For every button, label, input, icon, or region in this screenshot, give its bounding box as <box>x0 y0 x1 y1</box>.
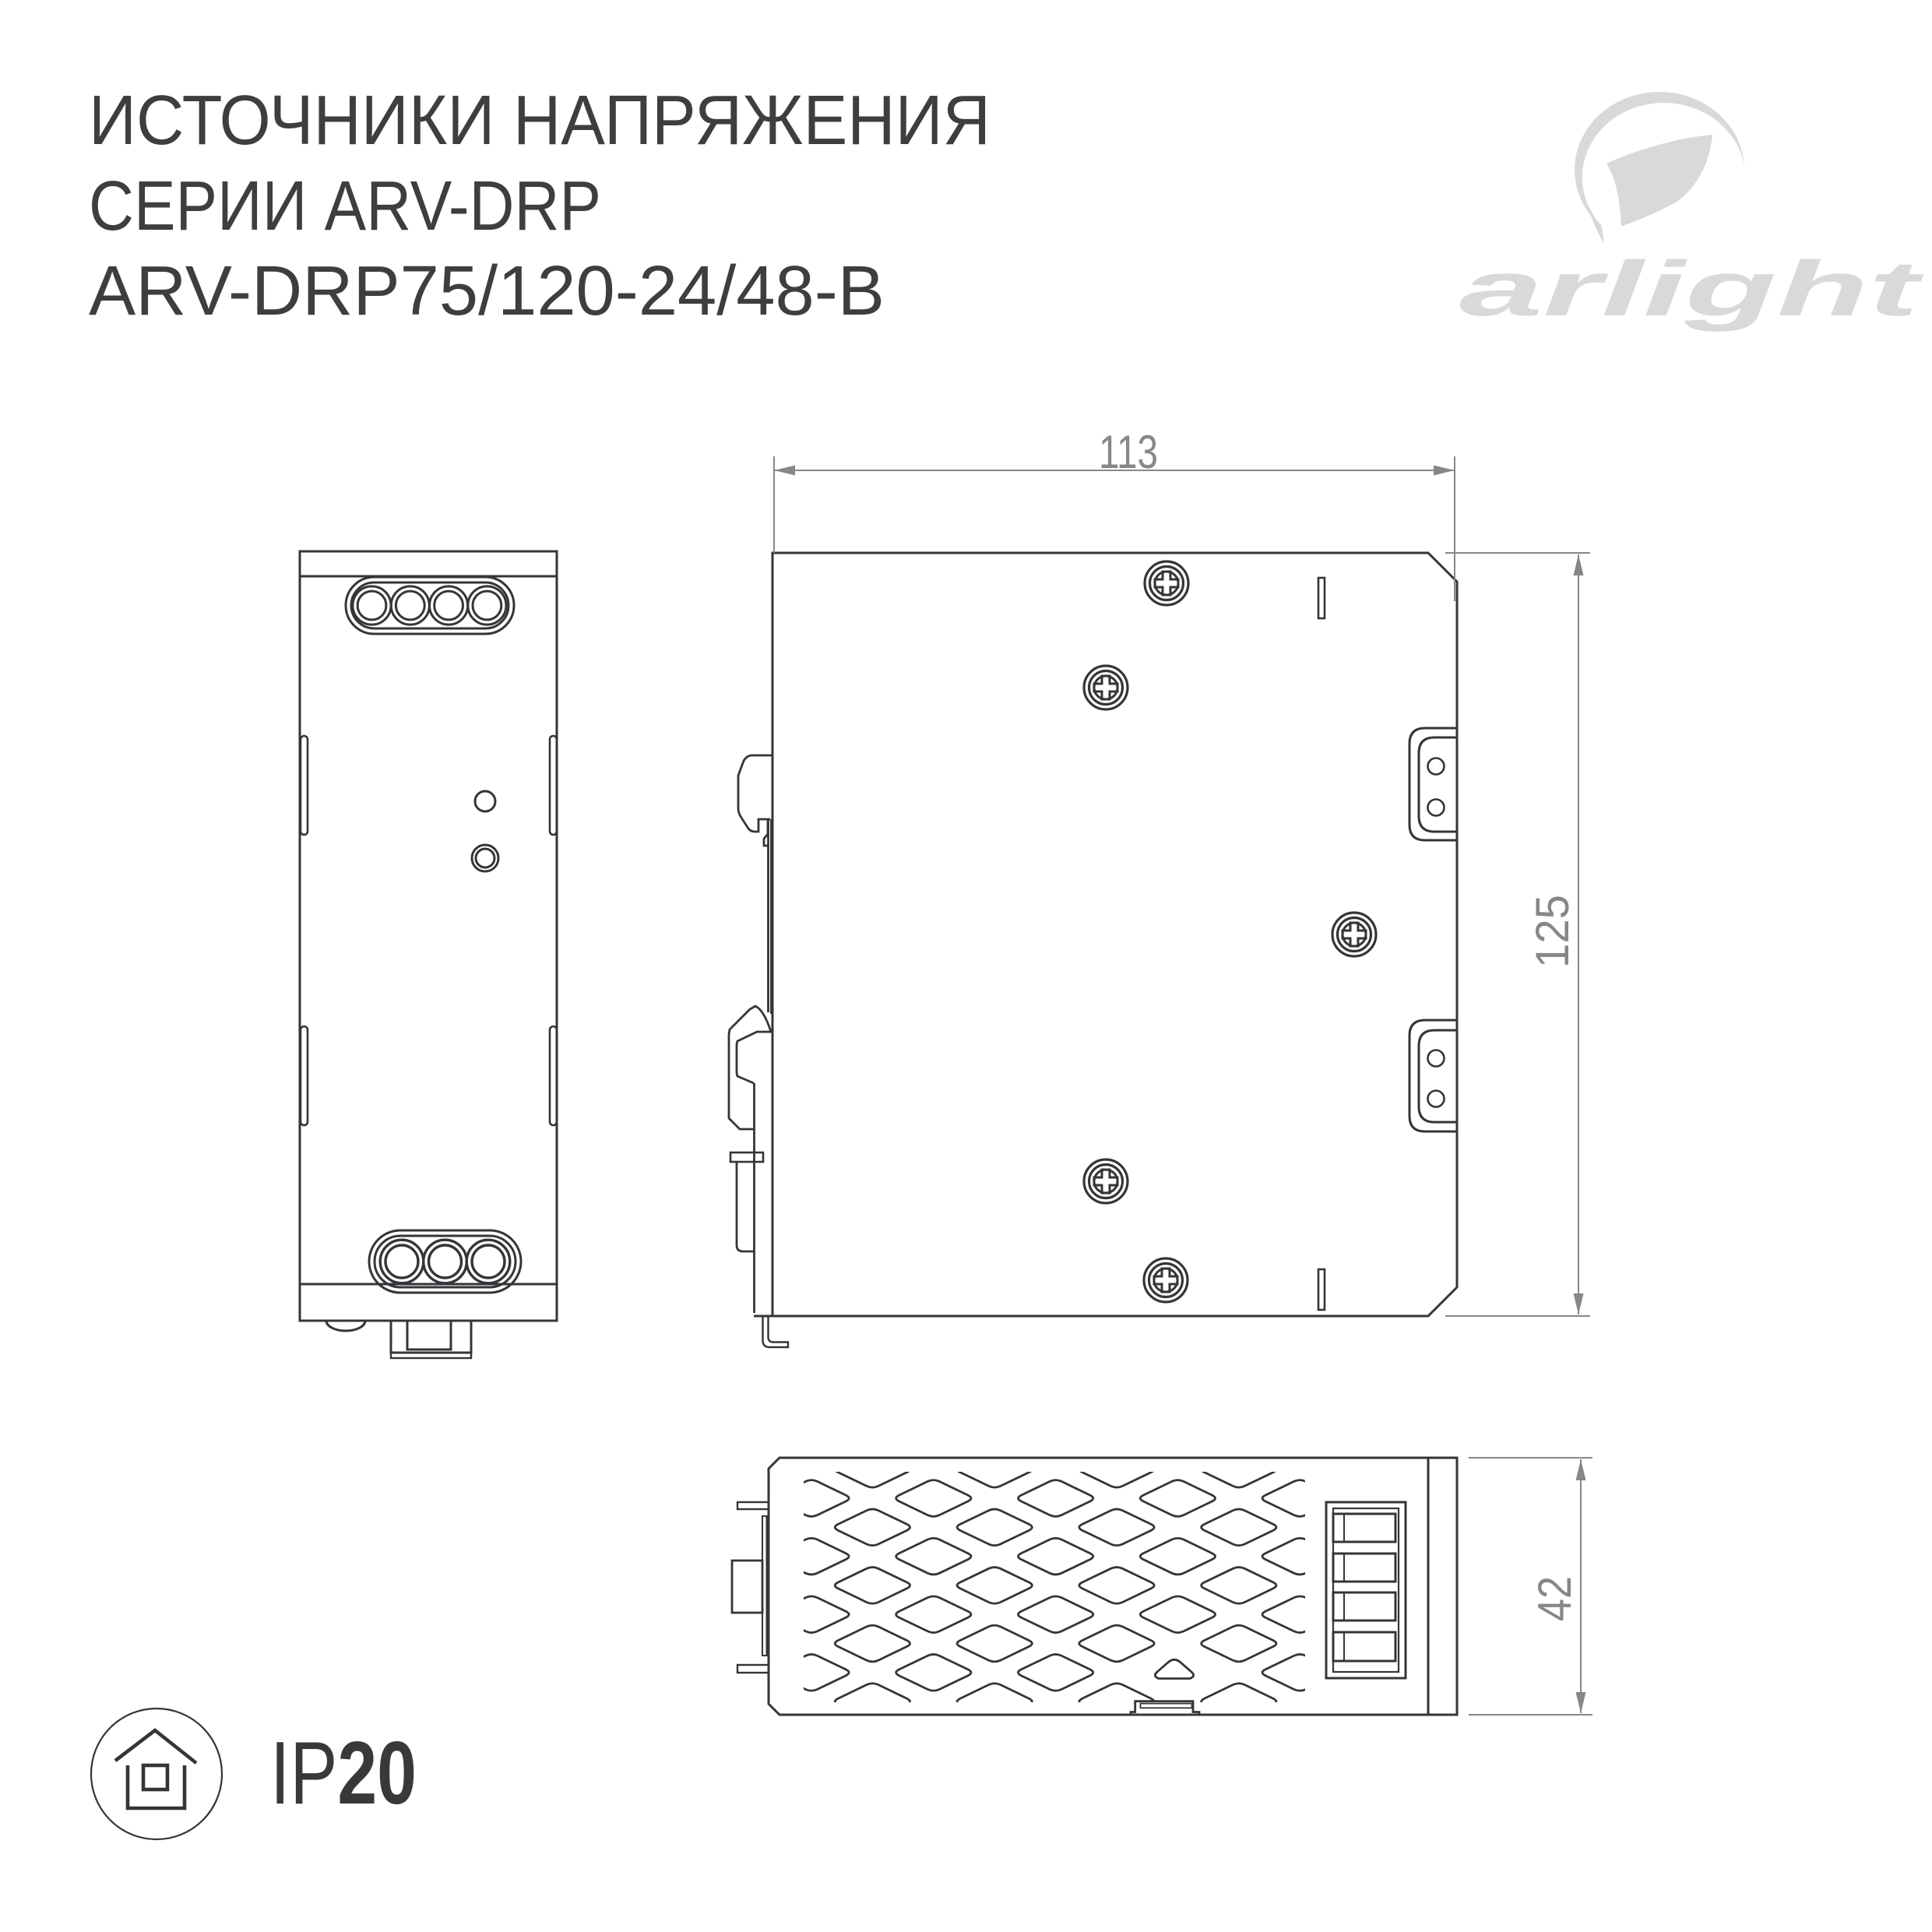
svg-text:arlight: arlight <box>1459 245 1924 333</box>
svg-text:ARV-DRP75/120-24/48-B: ARV-DRP75/120-24/48-B <box>89 252 885 330</box>
svg-text:42: 42 <box>1529 1576 1581 1621</box>
svg-text:IP20: IP20 <box>270 1724 417 1823</box>
svg-text:113: 113 <box>1099 426 1158 478</box>
svg-text:СЕРИИ ARV-DRP: СЕРИИ ARV-DRP <box>89 167 601 245</box>
svg-text:125: 125 <box>1526 895 1578 968</box>
svg-text:ИСТОЧНИКИ НАПРЯЖЕНИЯ: ИСТОЧНИКИ НАПРЯЖЕНИЯ <box>89 82 991 160</box>
